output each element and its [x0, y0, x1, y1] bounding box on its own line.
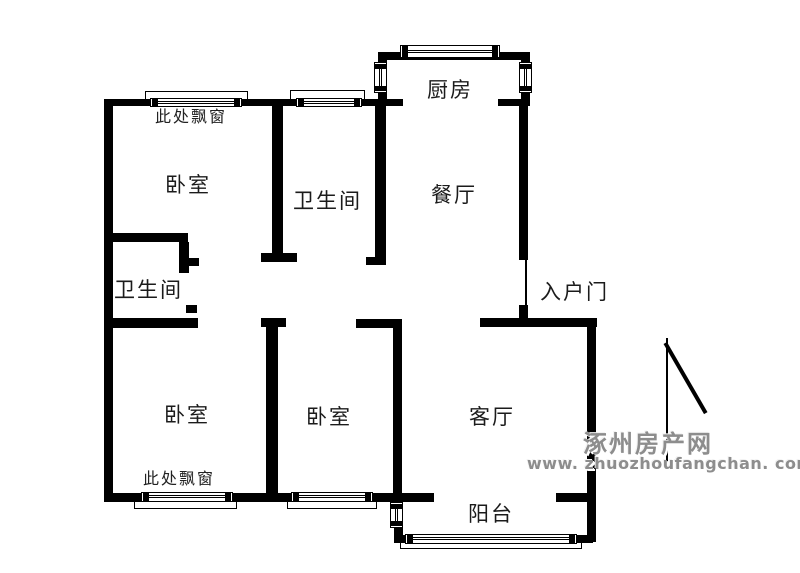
- wall-bathroom-left-right: [179, 242, 189, 273]
- wall-bathroom-top-left: [272, 106, 283, 253]
- window-kitchen-top: [400, 45, 500, 58]
- wall-bathroom-left-top: [104, 233, 188, 242]
- wall-bathroom-left-bottom: [104, 318, 198, 328]
- room-label-bedroom-bottom-left: 卧室: [164, 405, 210, 426]
- door-jamb-tick-lower: [186, 305, 197, 313]
- wall-bedroom-divider: [266, 327, 278, 493]
- watermark-site-name: 涿州房产网: [583, 432, 713, 456]
- window-kitchen-right: [519, 62, 532, 93]
- bay-window-note-top: 此处飘窗: [155, 110, 227, 126]
- wall-bedroom-middle-right: [393, 327, 402, 493]
- wall-bedroom-divider-tick: [261, 318, 286, 327]
- bay-window-top-bedroom: [150, 98, 242, 107]
- bay-window-bottom-left-bedroom: [141, 492, 233, 502]
- bay-window-note-bottom: 此处飘窗: [143, 472, 215, 488]
- room-label-dining: 餐厅: [431, 185, 477, 206]
- wall-balcony-top-left-stub: [403, 493, 434, 502]
- bay-window-bottom-middle-bedroom: [291, 492, 373, 502]
- wall-balcony-left-lower-stub: [394, 526, 403, 543]
- entry-door-leaf-icon: [664, 342, 708, 414]
- entry-door-opening-line: [525, 260, 527, 305]
- room-label-bedroom-bottom-middle: 卧室: [306, 407, 352, 428]
- floor-plan-canvas: 此处飘窗 卧室 卫生间 厨房 餐厅 卫生间 入户门 卧室 卧室 客厅 阳台 此处…: [0, 0, 800, 573]
- window-balcony-left: [390, 502, 403, 528]
- wall-balcony-top-right-stub: [556, 493, 587, 502]
- door-jamb-tick-upper: [189, 258, 199, 266]
- room-label-bathroom-left: 卫生间: [114, 280, 183, 301]
- watermark-site-url: www. zhuozhoufangchan. com: [527, 456, 800, 472]
- wall-right-dining: [519, 106, 528, 260]
- wall-bathroom-top-left-foot: [261, 253, 297, 262]
- room-label-bathroom-top: 卫生间: [293, 191, 362, 212]
- room-label-living: 客厅: [469, 407, 515, 428]
- window-top-bathroom: [296, 98, 362, 107]
- wall-entry-stub: [519, 305, 528, 319]
- room-label-kitchen: 厨房: [427, 80, 473, 101]
- wall-living-top: [480, 318, 597, 327]
- room-label-balcony: 阳台: [468, 504, 514, 525]
- wall-left-exterior: [104, 99, 113, 502]
- wall-bathroom-top-right-foot: [366, 257, 386, 265]
- room-label-bedroom-top-left: 卧室: [165, 175, 211, 196]
- wall-bathroom-top-right: [375, 106, 386, 257]
- window-balcony-bottom: [405, 534, 577, 544]
- wall-top-right-stub: [498, 99, 530, 106]
- bay-window-outline-bottom-left: [134, 501, 237, 509]
- label-entry-door: 入户门: [540, 282, 609, 303]
- bay-window-outline-bottom-middle: [287, 501, 377, 509]
- window-kitchen-left: [374, 62, 387, 93]
